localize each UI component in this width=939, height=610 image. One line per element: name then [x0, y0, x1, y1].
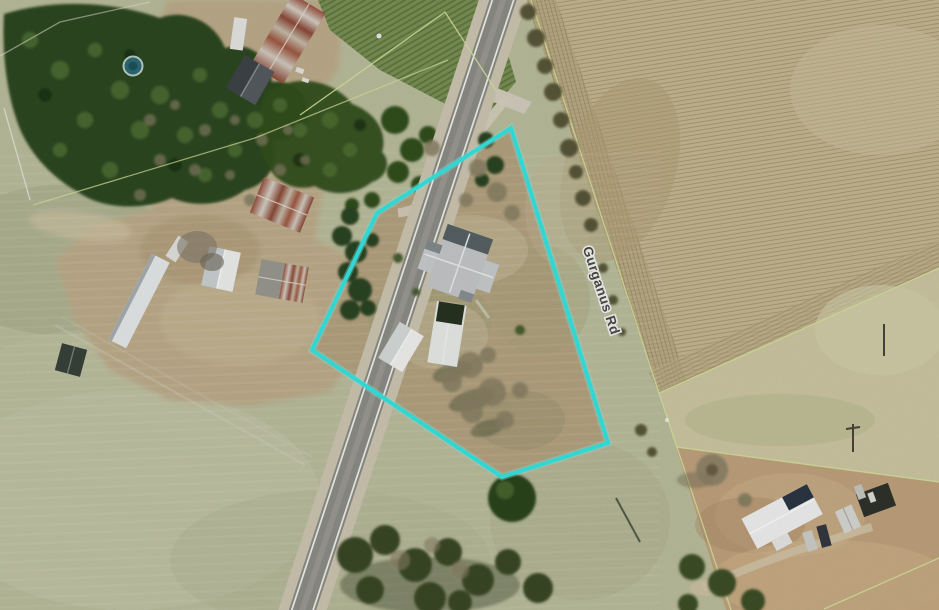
- map-canvas: Gurganus Rd: [0, 0, 939, 610]
- imagery-grain: [0, 0, 939, 610]
- aerial-map[interactable]: Gurganus Rd: [0, 0, 939, 610]
